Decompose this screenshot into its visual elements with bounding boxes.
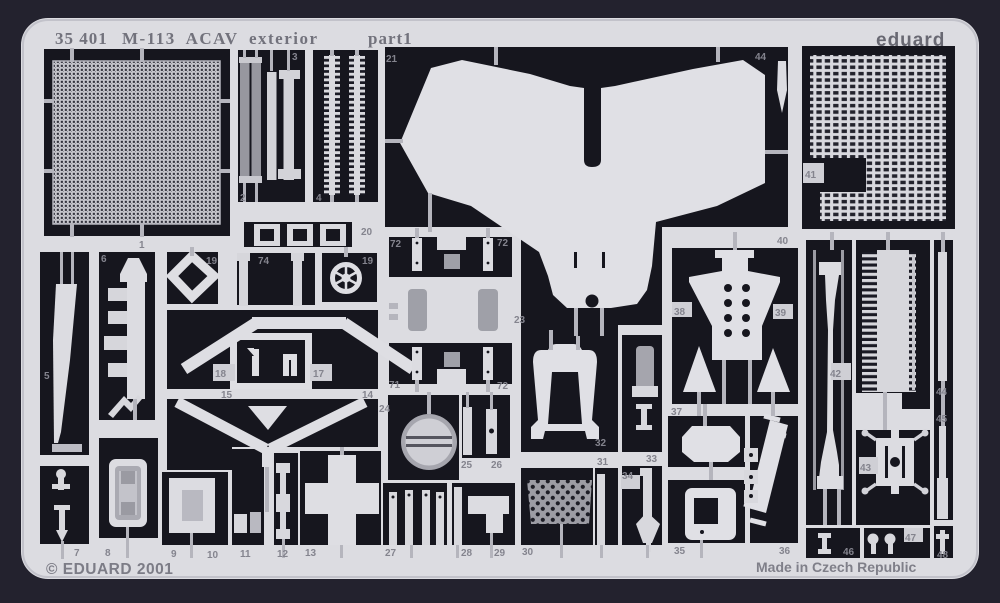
- svg-text:5: 5: [44, 371, 50, 382]
- svg-text:38: 38: [674, 307, 686, 318]
- svg-text:24: 24: [379, 404, 391, 415]
- svg-text:31: 31: [597, 457, 609, 468]
- svg-text:M-113 ACAV exterior: M-113 ACAV exterior: [122, 29, 319, 48]
- svg-text:26: 26: [491, 460, 503, 471]
- svg-text:42: 42: [830, 369, 842, 380]
- svg-text:12: 12: [277, 549, 289, 560]
- svg-text:39: 39: [775, 308, 787, 319]
- svg-text:19: 19: [206, 256, 218, 267]
- svg-text:43: 43: [860, 463, 872, 474]
- svg-text:72: 72: [497, 381, 509, 392]
- svg-text:© EDUARD 2001: © EDUARD 2001: [46, 561, 173, 578]
- svg-text:8: 8: [105, 548, 111, 559]
- svg-text:29: 29: [494, 548, 506, 559]
- svg-text:6: 6: [101, 254, 107, 265]
- svg-text:23: 23: [514, 315, 526, 326]
- svg-text:14: 14: [362, 390, 374, 401]
- svg-text:7: 7: [74, 548, 80, 559]
- svg-text:30: 30: [522, 547, 534, 558]
- svg-text:41: 41: [805, 170, 817, 181]
- svg-text:19: 19: [362, 256, 374, 267]
- svg-text:4: 4: [316, 193, 322, 204]
- svg-text:part1: part1: [368, 29, 413, 48]
- svg-text:20: 20: [361, 227, 373, 238]
- svg-text:32: 32: [595, 438, 607, 449]
- svg-text:21: 21: [386, 54, 398, 65]
- svg-text:27: 27: [385, 548, 397, 559]
- svg-text:25: 25: [461, 460, 473, 471]
- svg-text:15: 15: [221, 390, 233, 401]
- svg-text:35: 35: [674, 546, 686, 557]
- svg-text:44: 44: [936, 387, 948, 398]
- svg-text:71: 71: [389, 380, 401, 391]
- svg-text:72: 72: [390, 239, 402, 250]
- svg-text:47: 47: [905, 533, 917, 544]
- svg-text:10: 10: [207, 550, 219, 561]
- svg-text:46: 46: [843, 547, 855, 558]
- svg-text:44: 44: [755, 52, 767, 63]
- svg-text:33: 33: [646, 454, 658, 465]
- svg-text:Made in Czech Republic: Made in Czech Republic: [756, 559, 916, 575]
- svg-text:2: 2: [240, 193, 246, 204]
- svg-text:45: 45: [936, 414, 948, 425]
- svg-text:11: 11: [240, 549, 251, 560]
- svg-text:18: 18: [215, 369, 227, 380]
- svg-text:48: 48: [937, 550, 949, 561]
- svg-text:1: 1: [139, 240, 145, 251]
- svg-text:13: 13: [305, 548, 317, 559]
- svg-text:3: 3: [292, 52, 298, 63]
- svg-text:74: 74: [258, 256, 270, 267]
- svg-text:36: 36: [779, 546, 791, 557]
- svg-text:9: 9: [171, 549, 177, 560]
- svg-text:34: 34: [622, 471, 634, 482]
- svg-text:35 401: 35 401: [55, 29, 108, 48]
- svg-text:37: 37: [671, 407, 683, 418]
- svg-text:72: 72: [497, 238, 509, 249]
- svg-text:40: 40: [777, 236, 789, 247]
- svg-text:17: 17: [313, 369, 325, 380]
- svg-text:28: 28: [461, 548, 473, 559]
